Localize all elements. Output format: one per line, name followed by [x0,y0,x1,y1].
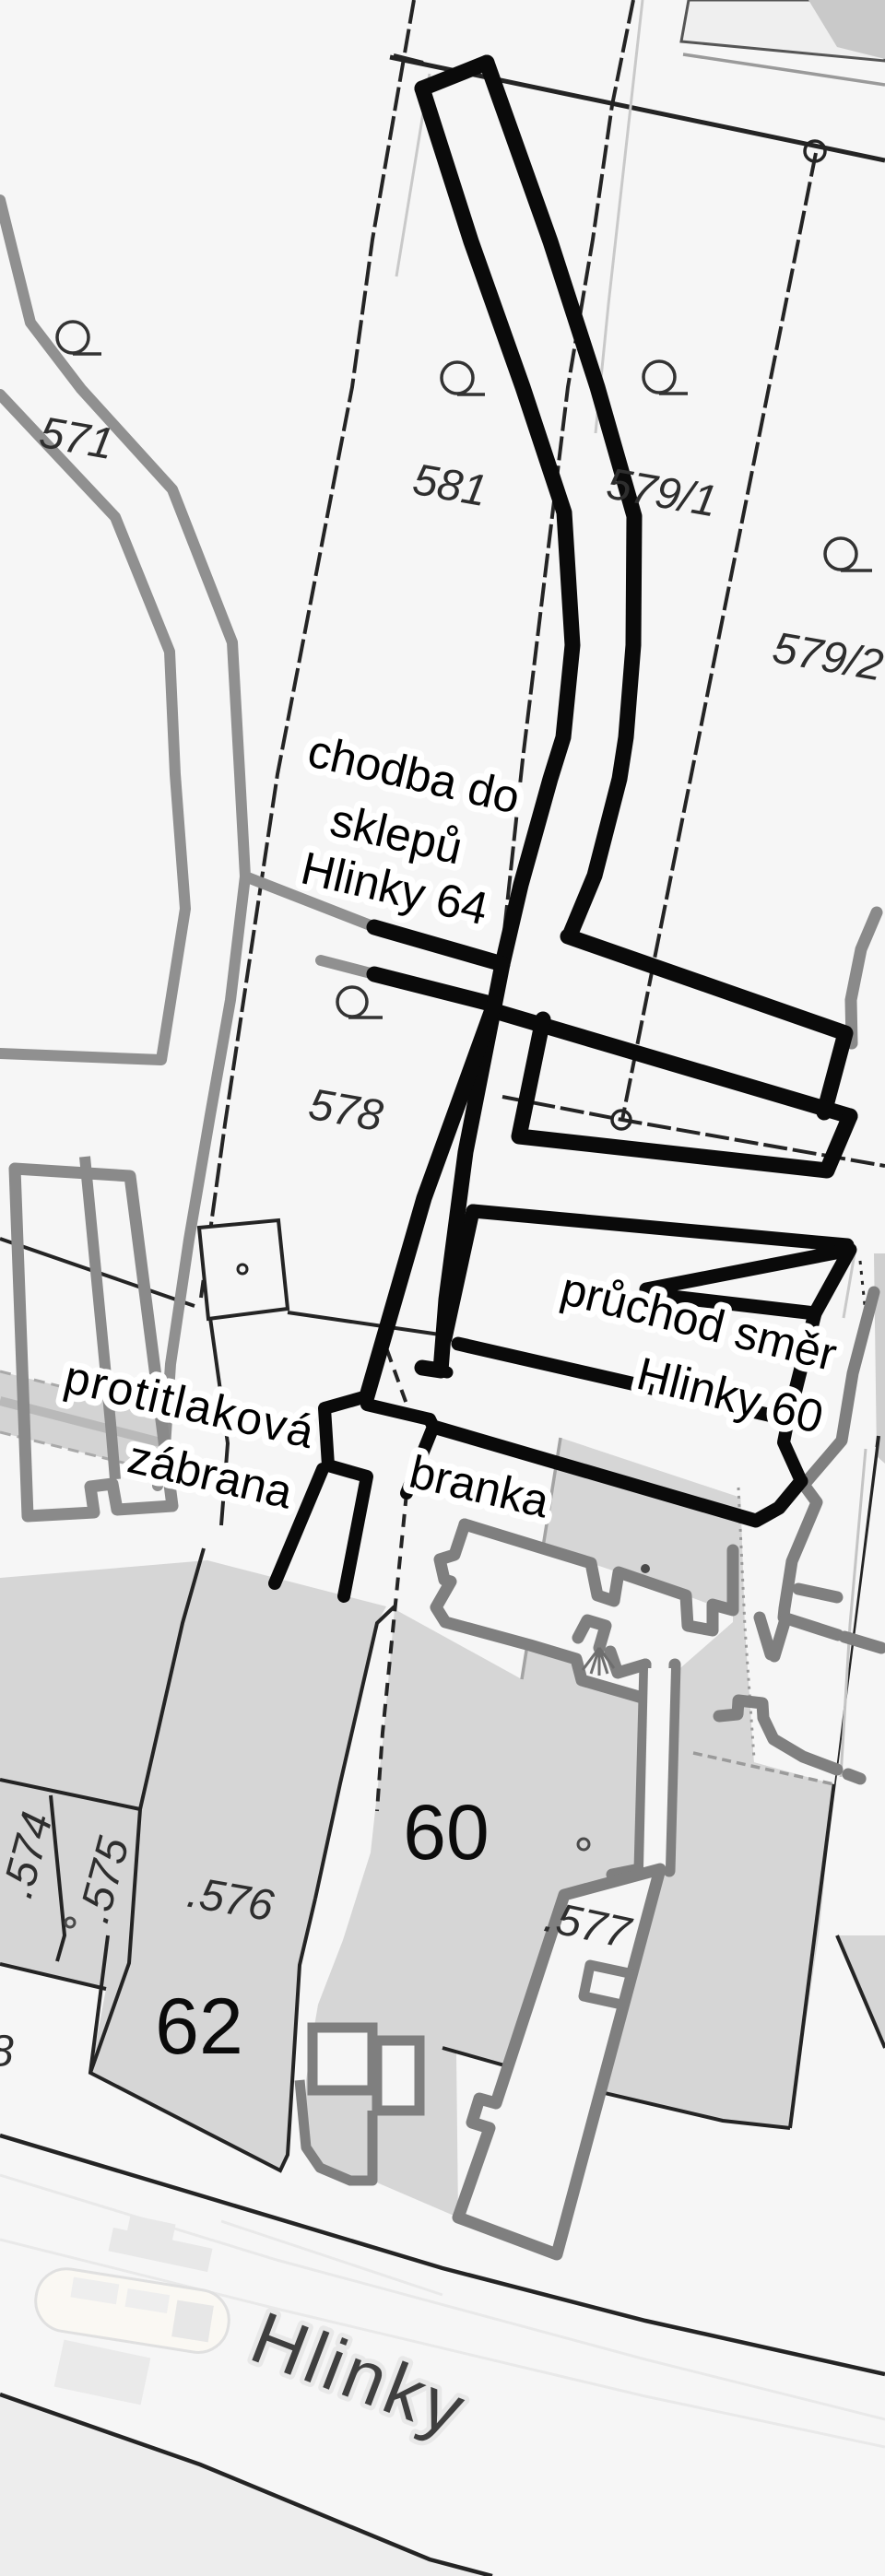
svg-text:60: 60 [403,1789,489,1876]
svg-text:62: 62 [155,1982,243,2071]
svg-text:8: 8 [0,2028,14,2076]
